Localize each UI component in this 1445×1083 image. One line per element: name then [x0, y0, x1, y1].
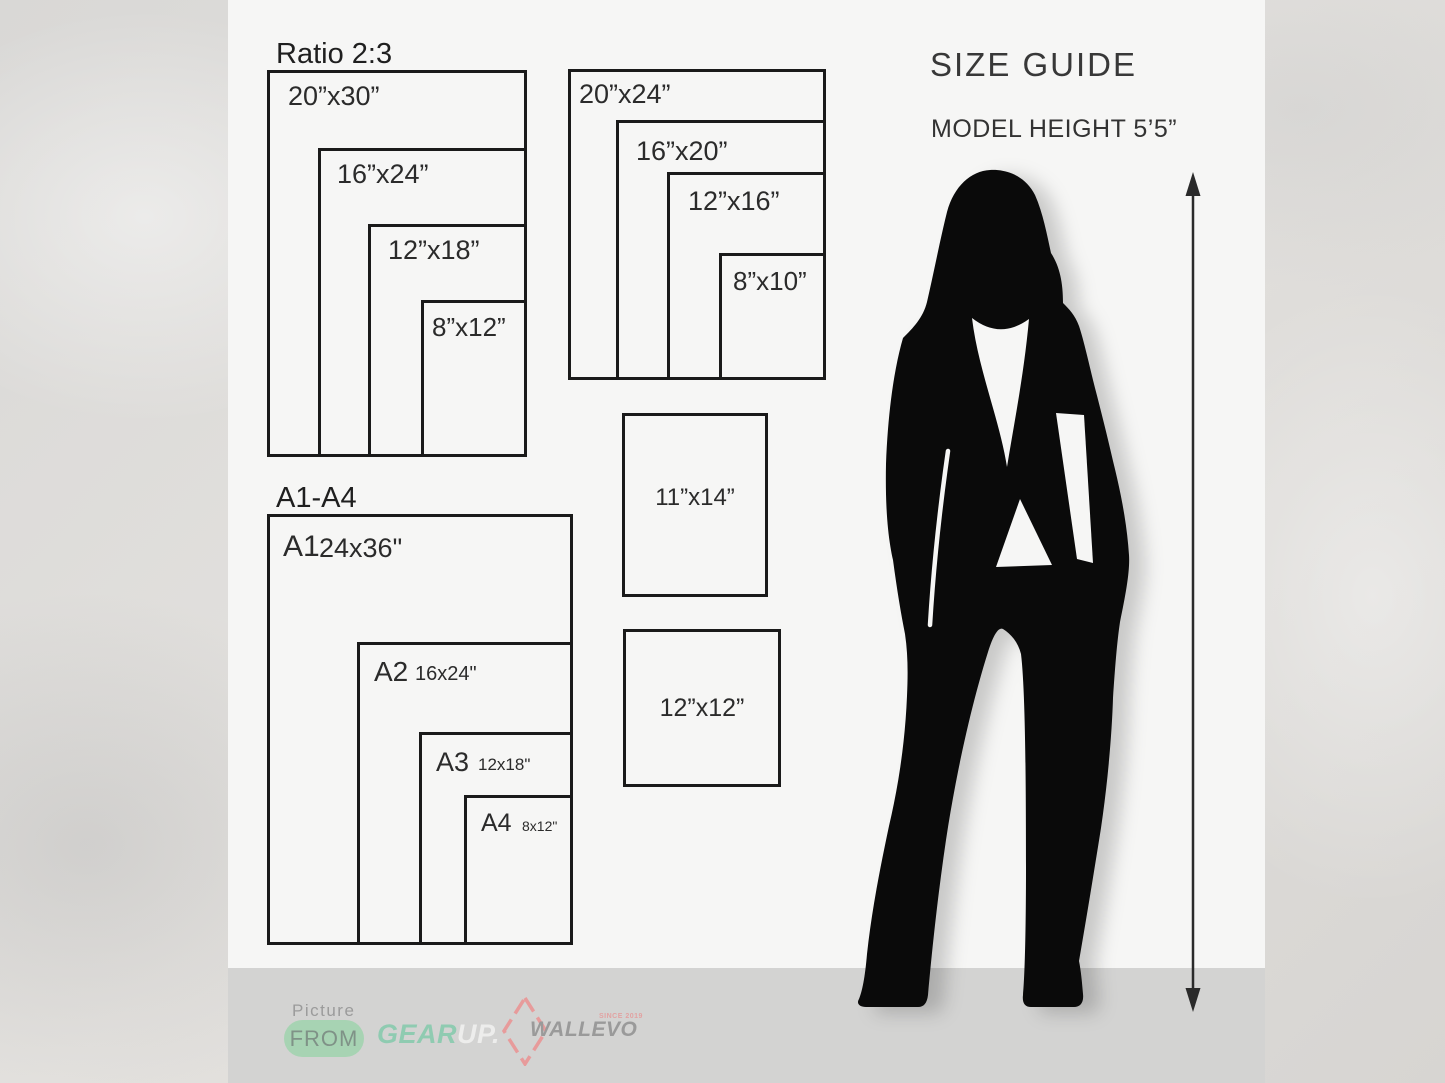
size-guide-image: Ratio 2:3 20”x30” 16”x24” 12”x18” 8”x12”…	[0, 0, 1445, 1083]
a2-size: 16x24"	[415, 664, 477, 684]
wallevo-logo: WALLEVO	[530, 1018, 637, 1042]
size-label-12x12: 12”x12”	[660, 694, 745, 723]
a3-size: 12x18"	[478, 756, 530, 773]
size-label-12x18: 12”x18”	[388, 237, 480, 264]
from-label: FROM	[290, 1026, 359, 1052]
a4-size: 8x12"	[522, 819, 557, 833]
size-label-12x16: 12”x16”	[688, 188, 780, 215]
gearup-logo: GEARUP.	[377, 1019, 500, 1050]
a2-name: A2	[374, 658, 408, 686]
gearup-logo-up: UP.	[457, 1019, 500, 1049]
size-label-20x30: 20”x30”	[288, 83, 380, 110]
page-title: SIZE GUIDE	[930, 46, 1137, 84]
picture-label: Picture	[292, 1001, 355, 1021]
a4-name: A4	[481, 811, 512, 836]
size-label-8x12: 8”x12”	[432, 314, 506, 340]
a3-name: A3	[436, 749, 469, 776]
a1-name: A1	[283, 532, 320, 562]
model-silhouette	[855, 162, 1155, 1027]
from-badge: FROM	[284, 1020, 364, 1057]
a-series-heading: A1-A4	[276, 484, 357, 513]
model-height-label: MODEL HEIGHT 5’5”	[931, 115, 1177, 144]
size-box-12x12: 12”x12”	[623, 629, 781, 787]
a1-size: 24x36"	[319, 535, 402, 562]
size-label-16x24: 16”x24”	[337, 161, 429, 188]
size-label-8x10: 8”x10”	[733, 268, 807, 294]
gearup-logo-gear: GEAR	[377, 1019, 457, 1049]
size-box-11x14: 11”x14”	[622, 413, 768, 597]
size-label-11x14: 11”x14”	[655, 484, 735, 512]
ratio-group-heading: Ratio 2:3	[276, 40, 392, 69]
size-label-16x20: 16”x20”	[636, 138, 728, 165]
size-label-20x24: 20”x24”	[579, 81, 671, 108]
height-arrow-icon	[1180, 168, 1206, 1016]
wallevo-since-label: SINCE 2019	[599, 1013, 643, 1020]
